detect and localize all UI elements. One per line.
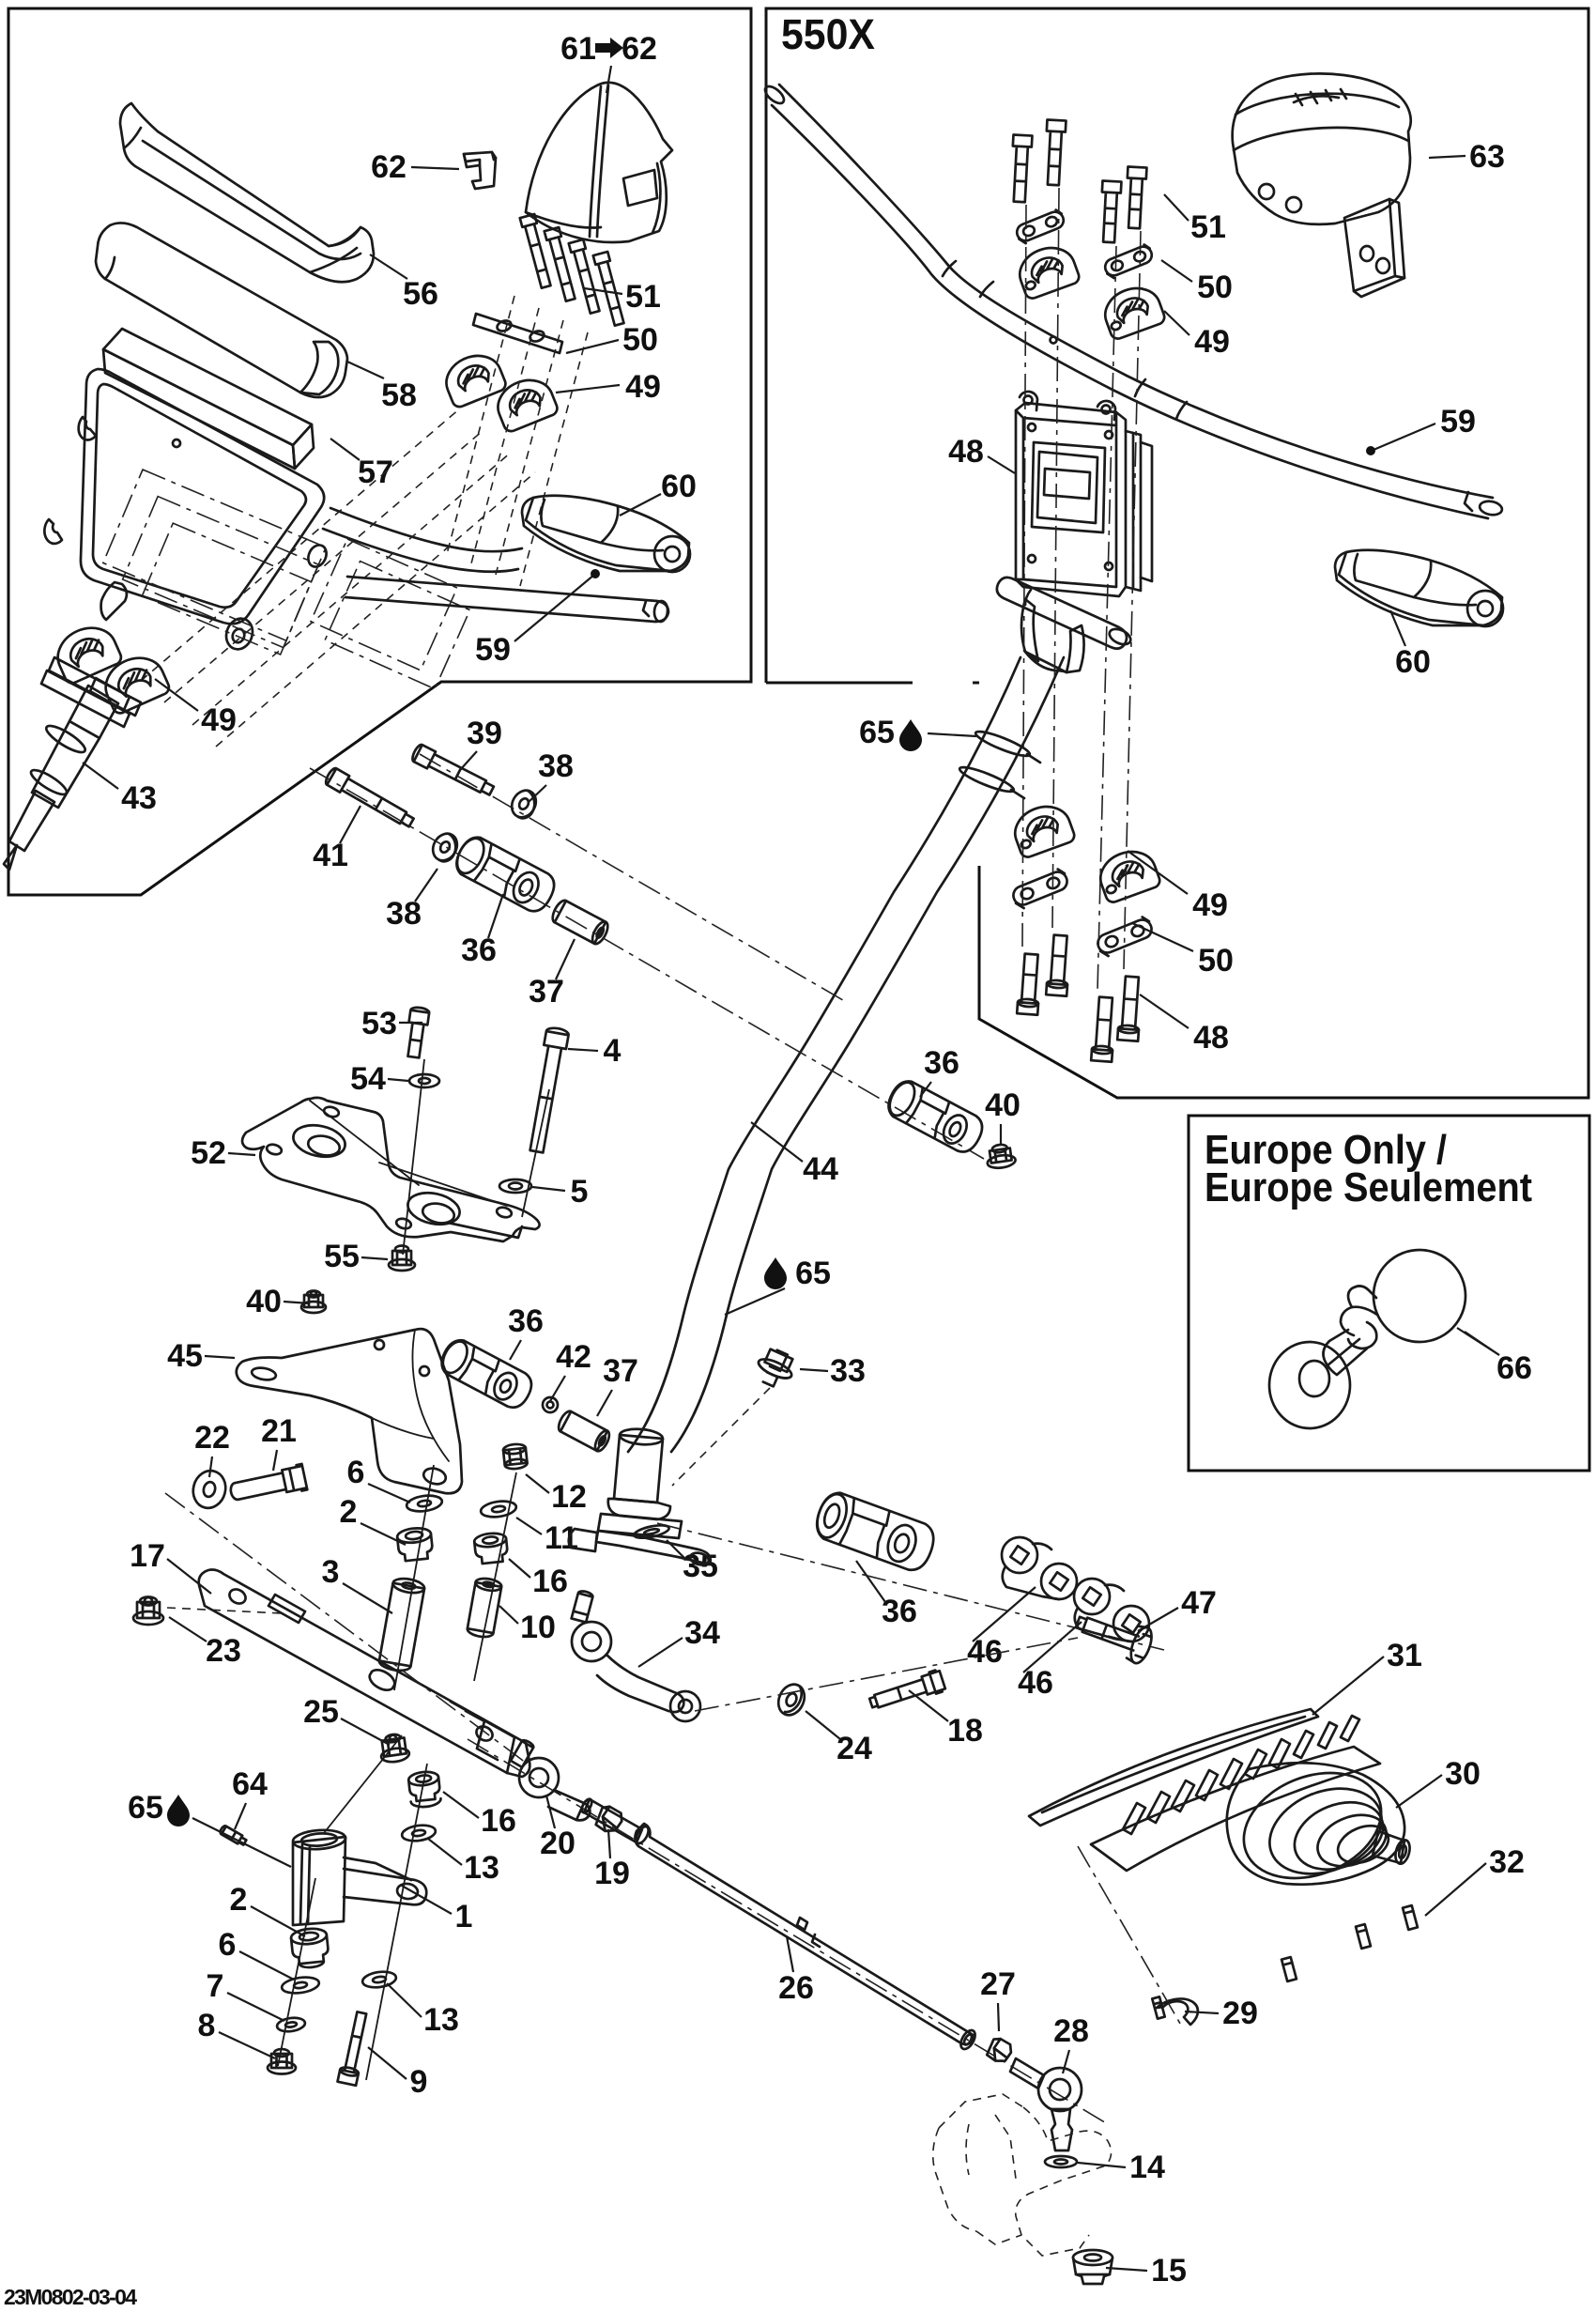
svg-text:16: 16	[481, 1803, 516, 1839]
svg-text:44: 44	[803, 1151, 838, 1187]
svg-text:9: 9	[410, 2064, 428, 2100]
svg-text:48: 48	[948, 434, 984, 470]
svg-text:14: 14	[1129, 2150, 1165, 2185]
svg-text:51: 51	[1190, 209, 1226, 245]
svg-text:58: 58	[381, 378, 417, 413]
svg-text:43: 43	[121, 780, 157, 816]
svg-text:48: 48	[1193, 1020, 1229, 1056]
svg-text:55: 55	[324, 1239, 360, 1274]
svg-text:42: 42	[556, 1339, 591, 1375]
svg-text:37: 37	[529, 974, 564, 1010]
svg-text:29: 29	[1222, 1996, 1258, 2031]
svg-text:23M0802-03-04: 23M0802-03-04	[4, 2285, 137, 2309]
svg-text:49: 49	[625, 369, 661, 405]
svg-text:26: 26	[778, 1970, 814, 2006]
svg-text:Europe Seulement: Europe Seulement	[1205, 1164, 1532, 1210]
svg-text:12: 12	[551, 1479, 587, 1515]
svg-text:23: 23	[206, 1633, 241, 1669]
svg-text:1: 1	[455, 1899, 473, 1934]
svg-text:2: 2	[340, 1494, 358, 1530]
svg-text:15: 15	[1151, 2253, 1187, 2289]
svg-text:59: 59	[475, 632, 511, 668]
svg-text:65: 65	[859, 715, 895, 750]
svg-text:6: 6	[347, 1455, 365, 1490]
svg-text:24: 24	[836, 1731, 872, 1766]
svg-text:21: 21	[261, 1413, 297, 1449]
svg-text:61: 61	[560, 31, 596, 67]
svg-text:40: 40	[246, 1284, 282, 1319]
svg-text:60: 60	[661, 469, 697, 504]
svg-text:40: 40	[985, 1087, 1021, 1123]
svg-text:30: 30	[1445, 1756, 1481, 1792]
svg-text:4: 4	[604, 1033, 622, 1069]
svg-text:56: 56	[403, 276, 438, 312]
svg-text:16: 16	[532, 1564, 568, 1599]
svg-text:32: 32	[1489, 1844, 1525, 1880]
svg-text:50: 50	[1197, 270, 1233, 305]
svg-text:31: 31	[1387, 1638, 1422, 1673]
svg-text:46: 46	[967, 1634, 1003, 1670]
svg-text:45: 45	[167, 1338, 203, 1374]
svg-text:59: 59	[1440, 404, 1476, 439]
svg-text:36: 36	[924, 1045, 959, 1081]
svg-text:19: 19	[594, 1856, 630, 1891]
svg-text:18: 18	[947, 1713, 983, 1749]
svg-text:65: 65	[795, 1256, 831, 1291]
svg-text:39: 39	[467, 716, 502, 751]
svg-text:63: 63	[1469, 139, 1505, 175]
svg-text:25: 25	[303, 1694, 339, 1730]
svg-text:36: 36	[882, 1594, 917, 1629]
svg-text:47: 47	[1181, 1585, 1217, 1621]
svg-text:37: 37	[603, 1353, 638, 1389]
svg-text:20: 20	[540, 1826, 575, 1861]
svg-text:53: 53	[361, 1006, 397, 1041]
svg-text:60: 60	[1395, 644, 1431, 680]
svg-text:57: 57	[358, 455, 393, 490]
svg-text:34: 34	[684, 1615, 720, 1651]
svg-text:46: 46	[1018, 1665, 1053, 1701]
svg-text:51: 51	[625, 279, 661, 315]
svg-text:27: 27	[980, 1966, 1016, 2002]
svg-text:52: 52	[191, 1135, 226, 1171]
svg-text:33: 33	[830, 1353, 866, 1389]
svg-text:13: 13	[464, 1850, 499, 1886]
svg-text:7: 7	[207, 1968, 224, 2004]
svg-text:62: 62	[371, 149, 407, 185]
svg-text:8: 8	[198, 2008, 216, 2043]
svg-text:5: 5	[571, 1174, 589, 1210]
svg-text:3: 3	[322, 1554, 340, 1590]
svg-text:6: 6	[219, 1927, 237, 1963]
svg-text:17: 17	[130, 1538, 165, 1574]
svg-text:11: 11	[545, 1520, 578, 1556]
svg-text:10: 10	[520, 1610, 556, 1645]
svg-text:49: 49	[1192, 887, 1228, 923]
svg-text:54: 54	[350, 1061, 386, 1097]
svg-text:38: 38	[538, 748, 574, 784]
svg-text:50: 50	[1198, 943, 1234, 979]
svg-text:22: 22	[194, 1420, 230, 1456]
svg-text:2: 2	[230, 1882, 248, 1918]
svg-text:36: 36	[508, 1303, 544, 1339]
svg-text:550X: 550X	[781, 10, 875, 58]
svg-text:13: 13	[423, 2002, 459, 2038]
svg-text:49: 49	[1194, 324, 1230, 360]
svg-text:65: 65	[128, 1790, 163, 1826]
svg-text:62: 62	[622, 31, 657, 67]
svg-text:66: 66	[1496, 1350, 1532, 1386]
svg-text:28: 28	[1053, 2013, 1089, 2049]
svg-text:50: 50	[622, 322, 658, 358]
svg-text:64: 64	[232, 1766, 268, 1802]
svg-text:41: 41	[313, 838, 348, 873]
svg-text:36: 36	[461, 933, 497, 968]
